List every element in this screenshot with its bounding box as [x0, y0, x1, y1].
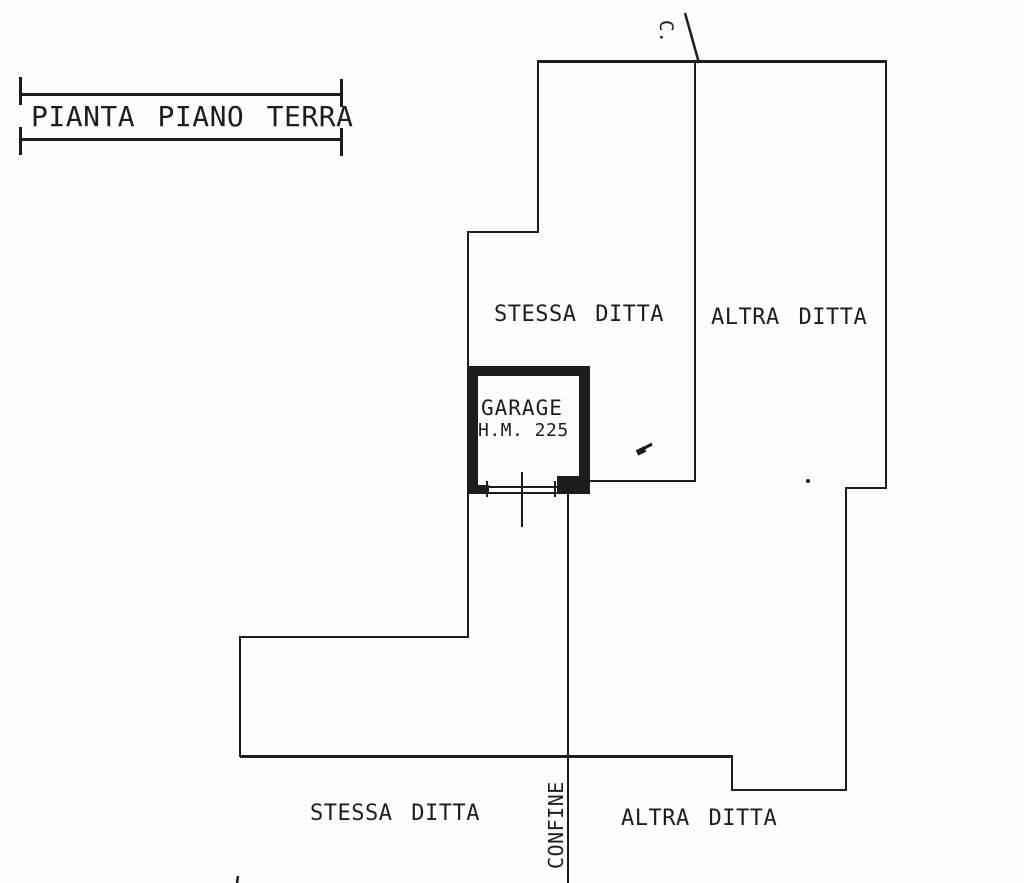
- floor-plan-sheet: PIANTA PIANO TERRA STESSA DITTA: [0, 0, 1024, 883]
- garage-height-label: H.M. 225: [478, 422, 569, 440]
- upper-left-parcel-label: STESSA DITTA: [494, 304, 664, 326]
- small-dot-mark: [806, 479, 810, 483]
- lower-right-parcel-label: ALTRA DITTA: [621, 808, 777, 830]
- corner-c-label: C.: [656, 20, 675, 62]
- garage-name-label: GARAGE: [481, 398, 563, 419]
- annotation-marks-layer: [0, 0, 1024, 883]
- confine-boundary-label: CONFINE: [546, 781, 566, 869]
- bottom-edge-tick: [237, 876, 238, 883]
- upper-right-parcel-label: ALTRA DITTA: [711, 307, 867, 329]
- lower-left-parcel-label: STESSA DITTA: [310, 803, 480, 825]
- c-boundary-diagonal-line: [685, 13, 699, 63]
- north-tick-mark-head: [637, 449, 645, 453]
